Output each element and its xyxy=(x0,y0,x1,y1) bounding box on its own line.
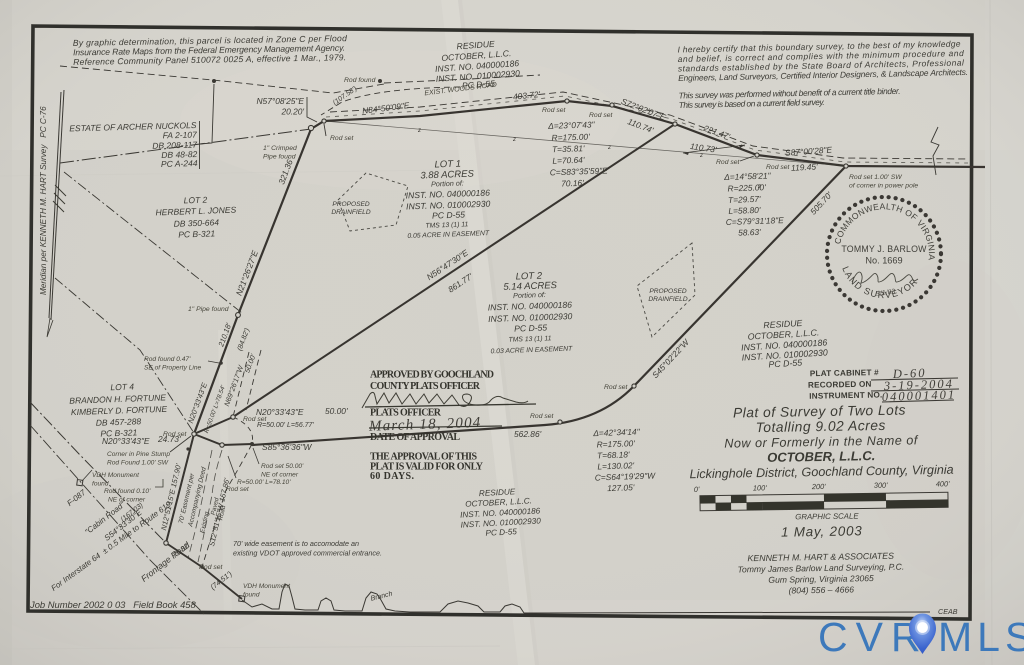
svg-text:Rod set: Rod set xyxy=(542,107,567,114)
svg-text:Portion of:: Portion of: xyxy=(431,178,464,188)
svg-text:200': 200' xyxy=(811,482,826,491)
svg-text:PC D-55: PC D-55 xyxy=(514,322,548,333)
svg-text:Δ=23°07'43": Δ=23°07'43" xyxy=(547,119,596,131)
svg-text:found: found xyxy=(92,481,109,488)
svg-text:APPROVED BY GOOCHLAND: APPROVED BY GOOCHLAND xyxy=(370,370,494,381)
svg-text:N20°33'43"E: N20°33'43"E xyxy=(102,436,150,446)
svg-text:Δ=14°58'21": Δ=14°58'21" xyxy=(723,170,772,182)
svg-text:N57°08'25"E: N57°08'25"E xyxy=(256,96,304,106)
svg-text:found: found xyxy=(243,592,260,599)
svg-text:Rod found: Rod found xyxy=(344,77,376,84)
svg-text:z: z xyxy=(417,128,421,134)
svg-text:Rod found 0.47': Rod found 0.47' xyxy=(144,356,191,363)
svg-text:N20°33'43"E: N20°33'43"E xyxy=(256,407,304,417)
svg-text:(804) 556 – 4666: (804) 556 – 4666 xyxy=(788,584,854,595)
svg-text:R=50.00' L=56.77': R=50.00' L=56.77' xyxy=(257,422,314,429)
svg-text:SE of Property Line: SE of Property Line xyxy=(144,365,202,372)
svg-text:Rod set: Rod set xyxy=(330,135,355,142)
svg-text:Rod set 50.00': Rod set 50.00' xyxy=(261,463,304,470)
svg-text:100': 100' xyxy=(753,483,767,492)
svg-text:Gum Spring, Virginia 23065: Gum Spring, Virginia 23065 xyxy=(768,573,874,585)
svg-text:T=35.81': T=35.81' xyxy=(552,143,585,154)
svg-text:1" Pipe found: 1" Pipe found xyxy=(188,306,229,313)
svg-text:50.00': 50.00' xyxy=(325,406,348,416)
svg-text:60 DAYS.: 60 DAYS. xyxy=(370,471,415,482)
svg-text:Rod set: Rod set xyxy=(604,384,629,391)
svg-text:T=68.18': T=68.18' xyxy=(597,449,630,460)
svg-text:1" Crimped: 1" Crimped xyxy=(263,145,297,152)
svg-text:of corner in power pole: of corner in power pole xyxy=(849,183,918,190)
svg-text:Rod set: Rod set xyxy=(716,159,741,166)
svg-text:MLS: MLS xyxy=(938,614,1024,660)
svg-text:Rod set: Rod set xyxy=(530,413,555,420)
svg-text:20.20': 20.20' xyxy=(280,107,304,117)
svg-text:DRAINFIELD: DRAINFIELD xyxy=(331,209,370,216)
svg-text:INSTRUMENT NO.: INSTRUMENT NO. xyxy=(809,390,882,400)
svg-text:Corner in Pine Stump: Corner in Pine Stump xyxy=(107,451,170,458)
svg-text:L=58.80': L=58.80' xyxy=(728,205,761,216)
svg-text:Rod set: Rod set xyxy=(589,112,614,119)
svg-text:C=S79°31'18"E: C=S79°31'18"E xyxy=(726,215,785,227)
svg-text:LOT 2: LOT 2 xyxy=(183,195,207,206)
svg-text:T=29.57': T=29.57' xyxy=(728,194,761,205)
svg-text:1 May, 2003: 1 May, 2003 xyxy=(781,523,863,539)
svg-text:C=S83°35'59"E: C=S83°35'59"E xyxy=(550,165,609,177)
svg-text:Rod found 0.10': Rod found 0.10' xyxy=(104,488,151,495)
svg-text:PC D-55: PC D-55 xyxy=(485,527,517,538)
svg-text:LOT 4: LOT 4 xyxy=(110,381,134,392)
svg-text:DRAINFIELD: DRAINFIELD xyxy=(648,296,687,303)
svg-text:z: z xyxy=(512,137,516,143)
svg-text:TOMMY J. BARLOW: TOMMY J. BARLOW xyxy=(841,244,927,254)
svg-text:L=130.02': L=130.02' xyxy=(597,460,634,471)
svg-text:Portion of:: Portion of: xyxy=(513,290,546,300)
svg-text:COUNTY PLATS OFFICER: COUNTY PLATS OFFICER xyxy=(370,381,481,392)
svg-text:Rod set: Rod set xyxy=(199,564,224,571)
svg-text:z: z xyxy=(607,145,611,151)
svg-text:Rod set: Rod set xyxy=(766,164,791,171)
svg-text:Rod Found 1.00' SW: Rod Found 1.00' SW xyxy=(107,460,169,467)
svg-text:0': 0' xyxy=(694,485,700,494)
svg-text:300': 300' xyxy=(874,481,888,490)
svg-text:C=S64°19'29"W: C=S64°19'29"W xyxy=(595,470,657,482)
svg-text:127.05': 127.05' xyxy=(607,482,635,493)
svg-text:S85°36'36"W: S85°36'36"W xyxy=(262,442,312,452)
svg-text:VDH Monument: VDH Monument xyxy=(243,583,291,590)
svg-text:400': 400' xyxy=(936,479,950,488)
svg-text:R=50.00' L=78.10': R=50.00' L=78.10' xyxy=(237,479,291,486)
svg-text:PC B-321: PC B-321 xyxy=(178,228,215,239)
svg-text:z: z xyxy=(699,153,703,159)
svg-text:DB 350-664: DB 350-664 xyxy=(173,217,219,229)
svg-text:R=175.00': R=175.00' xyxy=(596,438,635,449)
svg-text:24.73': 24.73' xyxy=(157,434,181,444)
svg-text:Δ=42°34'14": Δ=42°34'14" xyxy=(592,426,641,438)
svg-text:R=175.00': R=175.00' xyxy=(551,131,590,142)
svg-text:PC D-55: PC D-55 xyxy=(432,209,466,220)
svg-text:RECORDED ON: RECORDED ON xyxy=(808,380,872,390)
svg-text:GRAPHIC SCALE: GRAPHIC SCALE xyxy=(795,512,859,522)
svg-text:Meridian per KENNETH M. HART S: Meridian per KENNETH M. HART Survey PC C… xyxy=(39,106,48,295)
svg-text:Job Number 2002 0 03 Field B: Job Number 2002 0 03 Field Book 458 xyxy=(29,599,197,610)
svg-text:58.63': 58.63' xyxy=(738,227,761,238)
svg-text:Totalling 9.02 Acres: Totalling 9.02 Acres xyxy=(756,418,886,435)
svg-text:VDH Monument: VDH Monument xyxy=(92,472,140,479)
svg-text:119.45': 119.45' xyxy=(791,161,818,172)
svg-text:PLAT CABINET #: PLAT CABINET # xyxy=(810,368,879,378)
svg-text:R=225.00': R=225.00' xyxy=(727,182,766,193)
svg-text:Rod set 1.00' SW: Rod set 1.00' SW xyxy=(849,174,902,181)
svg-text:No. 1669: No. 1669 xyxy=(865,256,902,266)
svg-text:PROPOSED: PROPOSED xyxy=(649,288,687,295)
svg-text:70.16': 70.16' xyxy=(561,178,584,189)
svg-text:PC A-244: PC A-244 xyxy=(161,158,198,169)
svg-text:L=70.64': L=70.64' xyxy=(552,155,585,166)
svg-text:70' wide easement is to accomo: 70' wide easement is to accomodate an xyxy=(233,539,359,548)
svg-text:PROPOSED: PROPOSED xyxy=(332,201,370,208)
svg-text:562.86': 562.86' xyxy=(514,429,542,439)
svg-text:DB 457-288: DB 457-288 xyxy=(96,416,142,428)
svg-text:existing VDOT approved commerc: existing VDOT approved commercial entran… xyxy=(233,549,382,558)
svg-text:OCTOBER, L.L.C.: OCTOBER, L.L.C. xyxy=(767,448,875,465)
svg-text:PC D-55: PC D-55 xyxy=(768,357,802,369)
svg-text:NE of corner: NE of corner xyxy=(261,472,299,479)
